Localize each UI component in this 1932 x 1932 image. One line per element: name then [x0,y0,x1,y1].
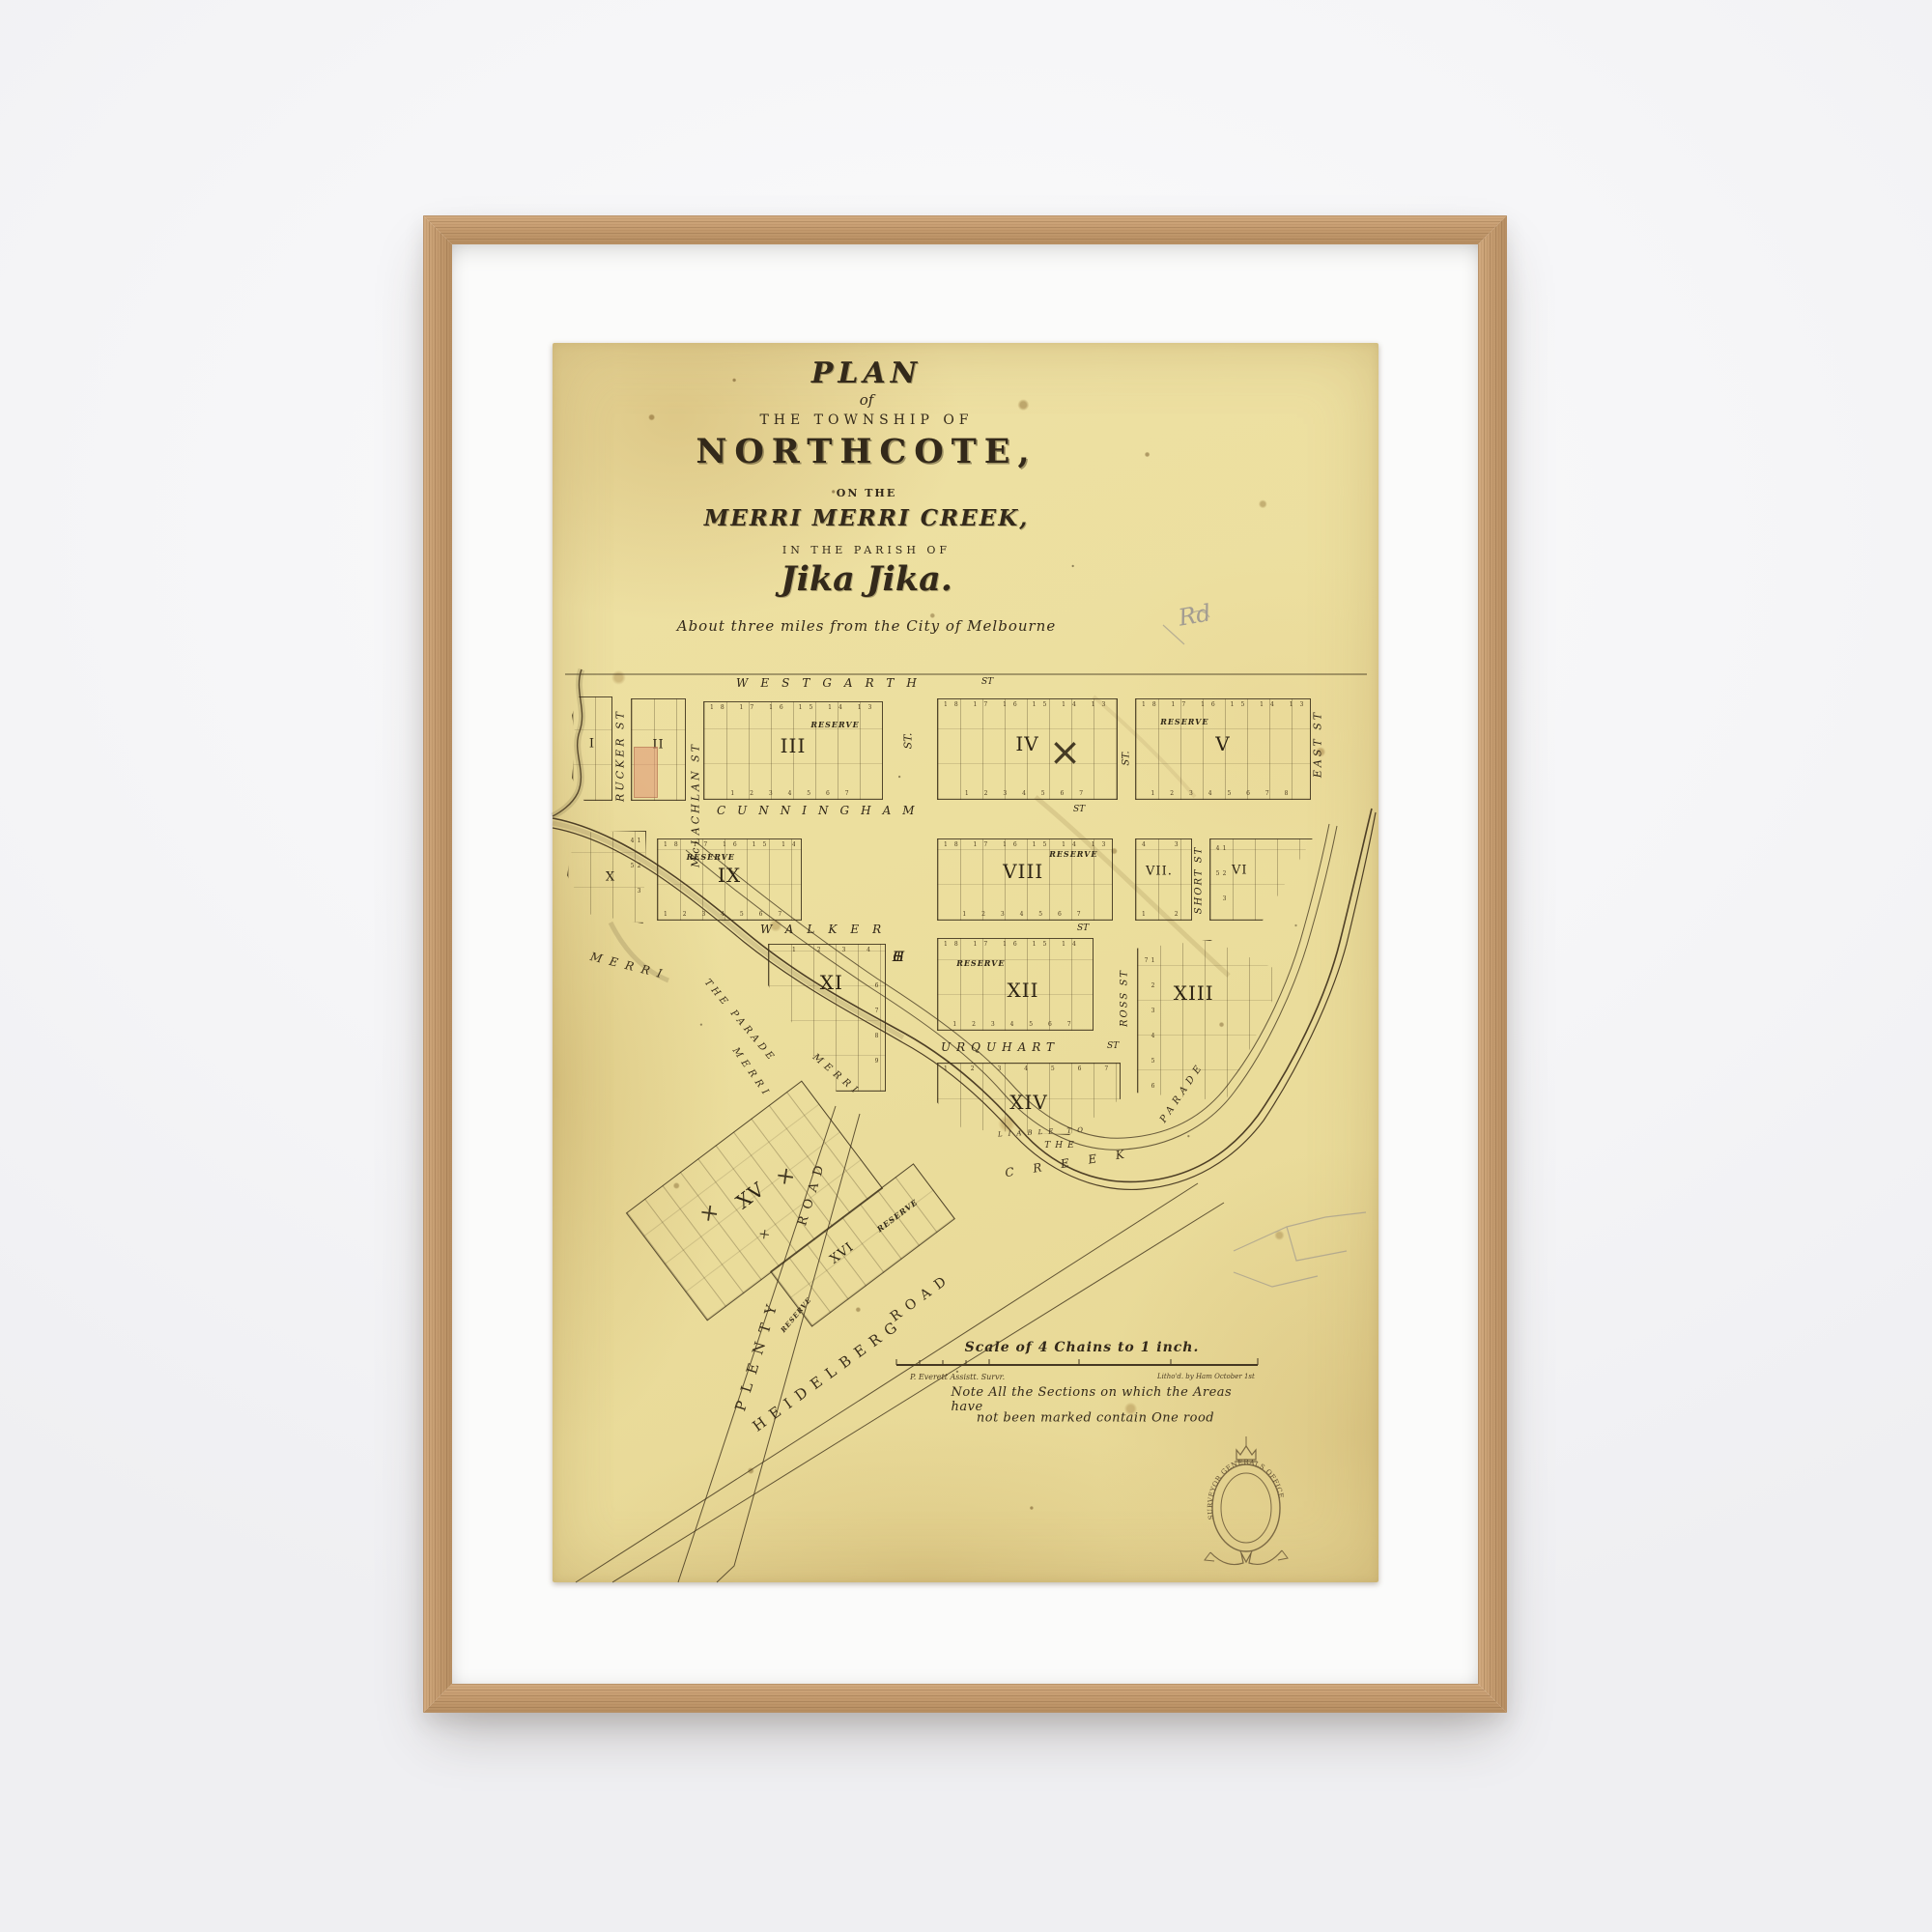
high-letter: H [893,950,904,965]
lot-numbers: 1 2 3 4 5 6 7 8 [1142,790,1304,797]
crossed-out-lot: × [696,1201,724,1229]
street-ross: ROSS ST [1120,969,1130,1027]
lot-numbers: 1 2 3 4 5 6 7 [944,790,1111,797]
lot-numbers: 18 17 16 15 14 13 12 [944,841,1106,848]
street-short: SHORT ST [1194,846,1205,915]
map-title-onthe: ON THE [673,487,1060,499]
lot-numbers: 1 2 3 4 5 6 7 8 9 10 [944,1065,1114,1072]
svg-text:SURVEYOR GENERALS OFFICE: SURVEYOR GENERALS OFFICE [1207,1459,1285,1520]
reserve-label: RESERVE [810,720,859,729]
street-mid-abbr: ST. [1122,751,1132,765]
block-numeral: XII [1007,979,1038,1002]
street-east: EAST ST [1312,710,1324,778]
lot-numbers: 6 7 8 9 [873,982,880,1070]
lot-numbers: 18 17 16 15 14 13 12 [944,701,1111,708]
map-note-line2: not been marked contain One rood [977,1411,1214,1426]
block-numeral: IX [718,864,741,887]
crossed-out-lots: × [1049,733,1082,772]
lot-numbers: 18 17 16 15 14 13 12 [710,704,876,711]
map-title-plan: PLAN [673,356,1060,390]
lithographer-credit: Litho'd. by Ham October 1st [1157,1373,1255,1380]
lot-numbers: 18 17 16 15 14 13 [944,941,1087,948]
product-photo: { "map": { "title": { "plan": "PLAN", "o… [0,0,1932,1932]
block-V: 18 17 16 15 14 13 12 RESERVE V 1 2 3 4 5… [1135,698,1311,800]
reserve-label: RESERVE [956,958,1005,968]
reserve-label: RESERVE [875,1197,920,1234]
map-paper: PLAN of THE TOWNSHIP OF NORTHCOTE, ON TH… [553,343,1378,1582]
mat-border: PLAN of THE TOWNSHIP OF NORTHCOTE, ON TH… [452,244,1478,1684]
title-block: PLAN of THE TOWNSHIP OF NORTHCOTE, ON TH… [673,343,1060,662]
block-III: 18 17 16 15 14 13 12 RESERVE III 1 2 3 4… [703,701,883,800]
street-urquhart: URQUHART [941,1040,1060,1054]
lot-numbers: 1 2 3 4 5 [792,947,879,953]
street-walker: WALKER [760,923,895,936]
creek-label-the: THE [1044,1141,1078,1151]
street-walker-abbr: ST [1077,923,1089,933]
street-westgarth: WESTGARTH [736,676,929,690]
lot-numbers: 1 2 3 4 5 6 7 [944,1021,1087,1028]
street-westgarth-abbr: ST [981,677,993,687]
street-urquhart-abbr: ST [1107,1041,1119,1051]
lot-numbers: 1 2 [1142,911,1185,918]
reserve-label: RESERVE [687,852,735,862]
lot-numbers: 1 2 3 4 5 [629,838,642,923]
crossed-out-lot: × [756,1226,773,1242]
block-XII: 18 17 16 15 14 13 RESERVE XII 1 2 3 4 5 … [937,938,1094,1031]
block-numeral: IV [1015,732,1038,755]
block-numeral: VI [1232,863,1248,877]
street-rucker: RUCKER ST [614,709,627,802]
lot-numbers: 1 2 3 4 5 6 7 [944,911,1106,918]
scale-bar [896,1358,1258,1365]
frame-edge-top [423,215,1507,244]
block-numeral: V [1215,732,1230,755]
seal-text: SURVEYOR GENERALS OFFICE [1207,1459,1285,1520]
block-numeral: XV [731,1178,769,1214]
block-numeral: XIII [1174,981,1214,1005]
lot-numbers: 1 2 3 4 5 6 7 8 [664,911,795,918]
crossed-out-lot: × [773,1163,800,1191]
map-title-township: THE TOWNSHIP OF [673,412,1060,428]
pencil-annotation: Rd [1177,599,1213,631]
frame-edge-left [423,215,452,1713]
surveyor-generals-seal: SURVEYOR GENERALS OFFICE [1195,1435,1297,1570]
block-numeral: VIII [1003,860,1043,883]
street-cunningham: CUNNINGHAM [717,804,926,817]
map-title-creek: MERRI MERRI CREEK, [673,505,1060,531]
block-numeral: XI [820,971,843,994]
frame-edge-right [1478,215,1507,1713]
lot-numbers: 1 2 3 4 5 6 7 [710,790,876,797]
block-numeral: XIV [1009,1091,1048,1114]
block-I: I [572,696,612,801]
block-numeral: XVI [828,1240,857,1267]
map-title-parish: IN THE PARISH OF [673,544,1060,556]
block-numeral: X [606,870,615,885]
highlighted-lot [634,747,658,798]
block-VII: 4 3 VII. 1 2 [1135,838,1192,921]
lot-numbers: 18 17 16 15 14 13 12 [664,841,795,848]
lot-numbers: 18 17 16 15 14 13 12 [1142,701,1304,708]
street-high-abbr: ST. [902,733,915,750]
block-IX: 18 17 16 15 14 13 12 RESERVE IX 1 2 3 4 … [657,838,802,921]
map-note-line1: Note All the Sections on which the Areas… [952,1385,1236,1414]
block-VIII: 18 17 16 15 14 13 12 RESERVE VIII 1 2 3 … [937,838,1113,921]
map-title-northcote: NORTHCOTE, [673,432,1060,471]
map-title-of: of [673,391,1060,409]
street-cunningham-abbr: ST [1073,805,1085,814]
lot-numbers: 1 2 3 4 5 [1214,845,1228,920]
lot-numbers: 1 2 3 4 5 6 7 [1143,957,1156,1105]
surveyor-credit: P. Everett Assistt. Survr. [910,1373,1005,1381]
map-title-subtitle: About three miles from the City of Melbo… [673,617,1060,635]
scale-label: Scale of 4 Chains to 1 inch. [965,1340,1200,1355]
block-numeral: I [589,736,595,751]
block-II: II [631,698,686,801]
frame-edge-bottom [423,1684,1507,1713]
block-numeral: VII. [1146,865,1173,879]
block-IV: 18 17 16 15 14 13 12 IV 1 2 3 4 5 6 7 × [937,698,1118,800]
map-title-jikajika: Jika Jika. [673,559,1060,599]
picture-frame: PLAN of THE TOWNSHIP OF NORTHCOTE, ON TH… [423,215,1507,1713]
reserve-label: RESERVE [1160,717,1208,726]
lot-numbers: 4 3 [1142,841,1185,848]
block-numeral: III [781,734,807,757]
reserve-label: RESERVE [1049,849,1097,859]
